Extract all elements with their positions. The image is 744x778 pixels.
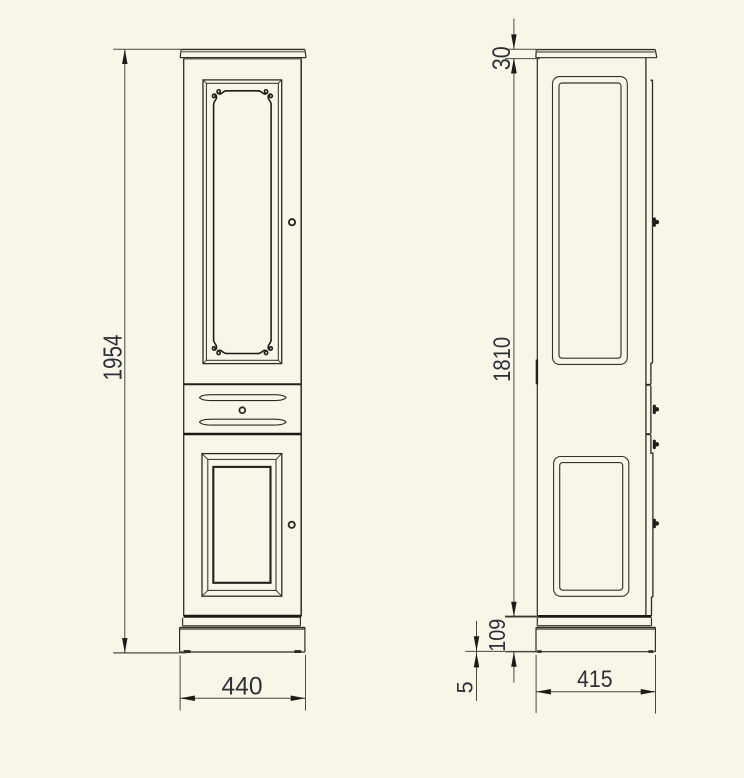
svg-text:109: 109 xyxy=(484,619,510,652)
svg-text:440: 440 xyxy=(222,672,263,700)
svg-text:415: 415 xyxy=(577,666,613,693)
svg-text:30: 30 xyxy=(488,46,516,70)
svg-text:1810: 1810 xyxy=(489,337,516,382)
svg-text:5: 5 xyxy=(452,681,477,693)
svg-text:1954: 1954 xyxy=(98,335,128,381)
